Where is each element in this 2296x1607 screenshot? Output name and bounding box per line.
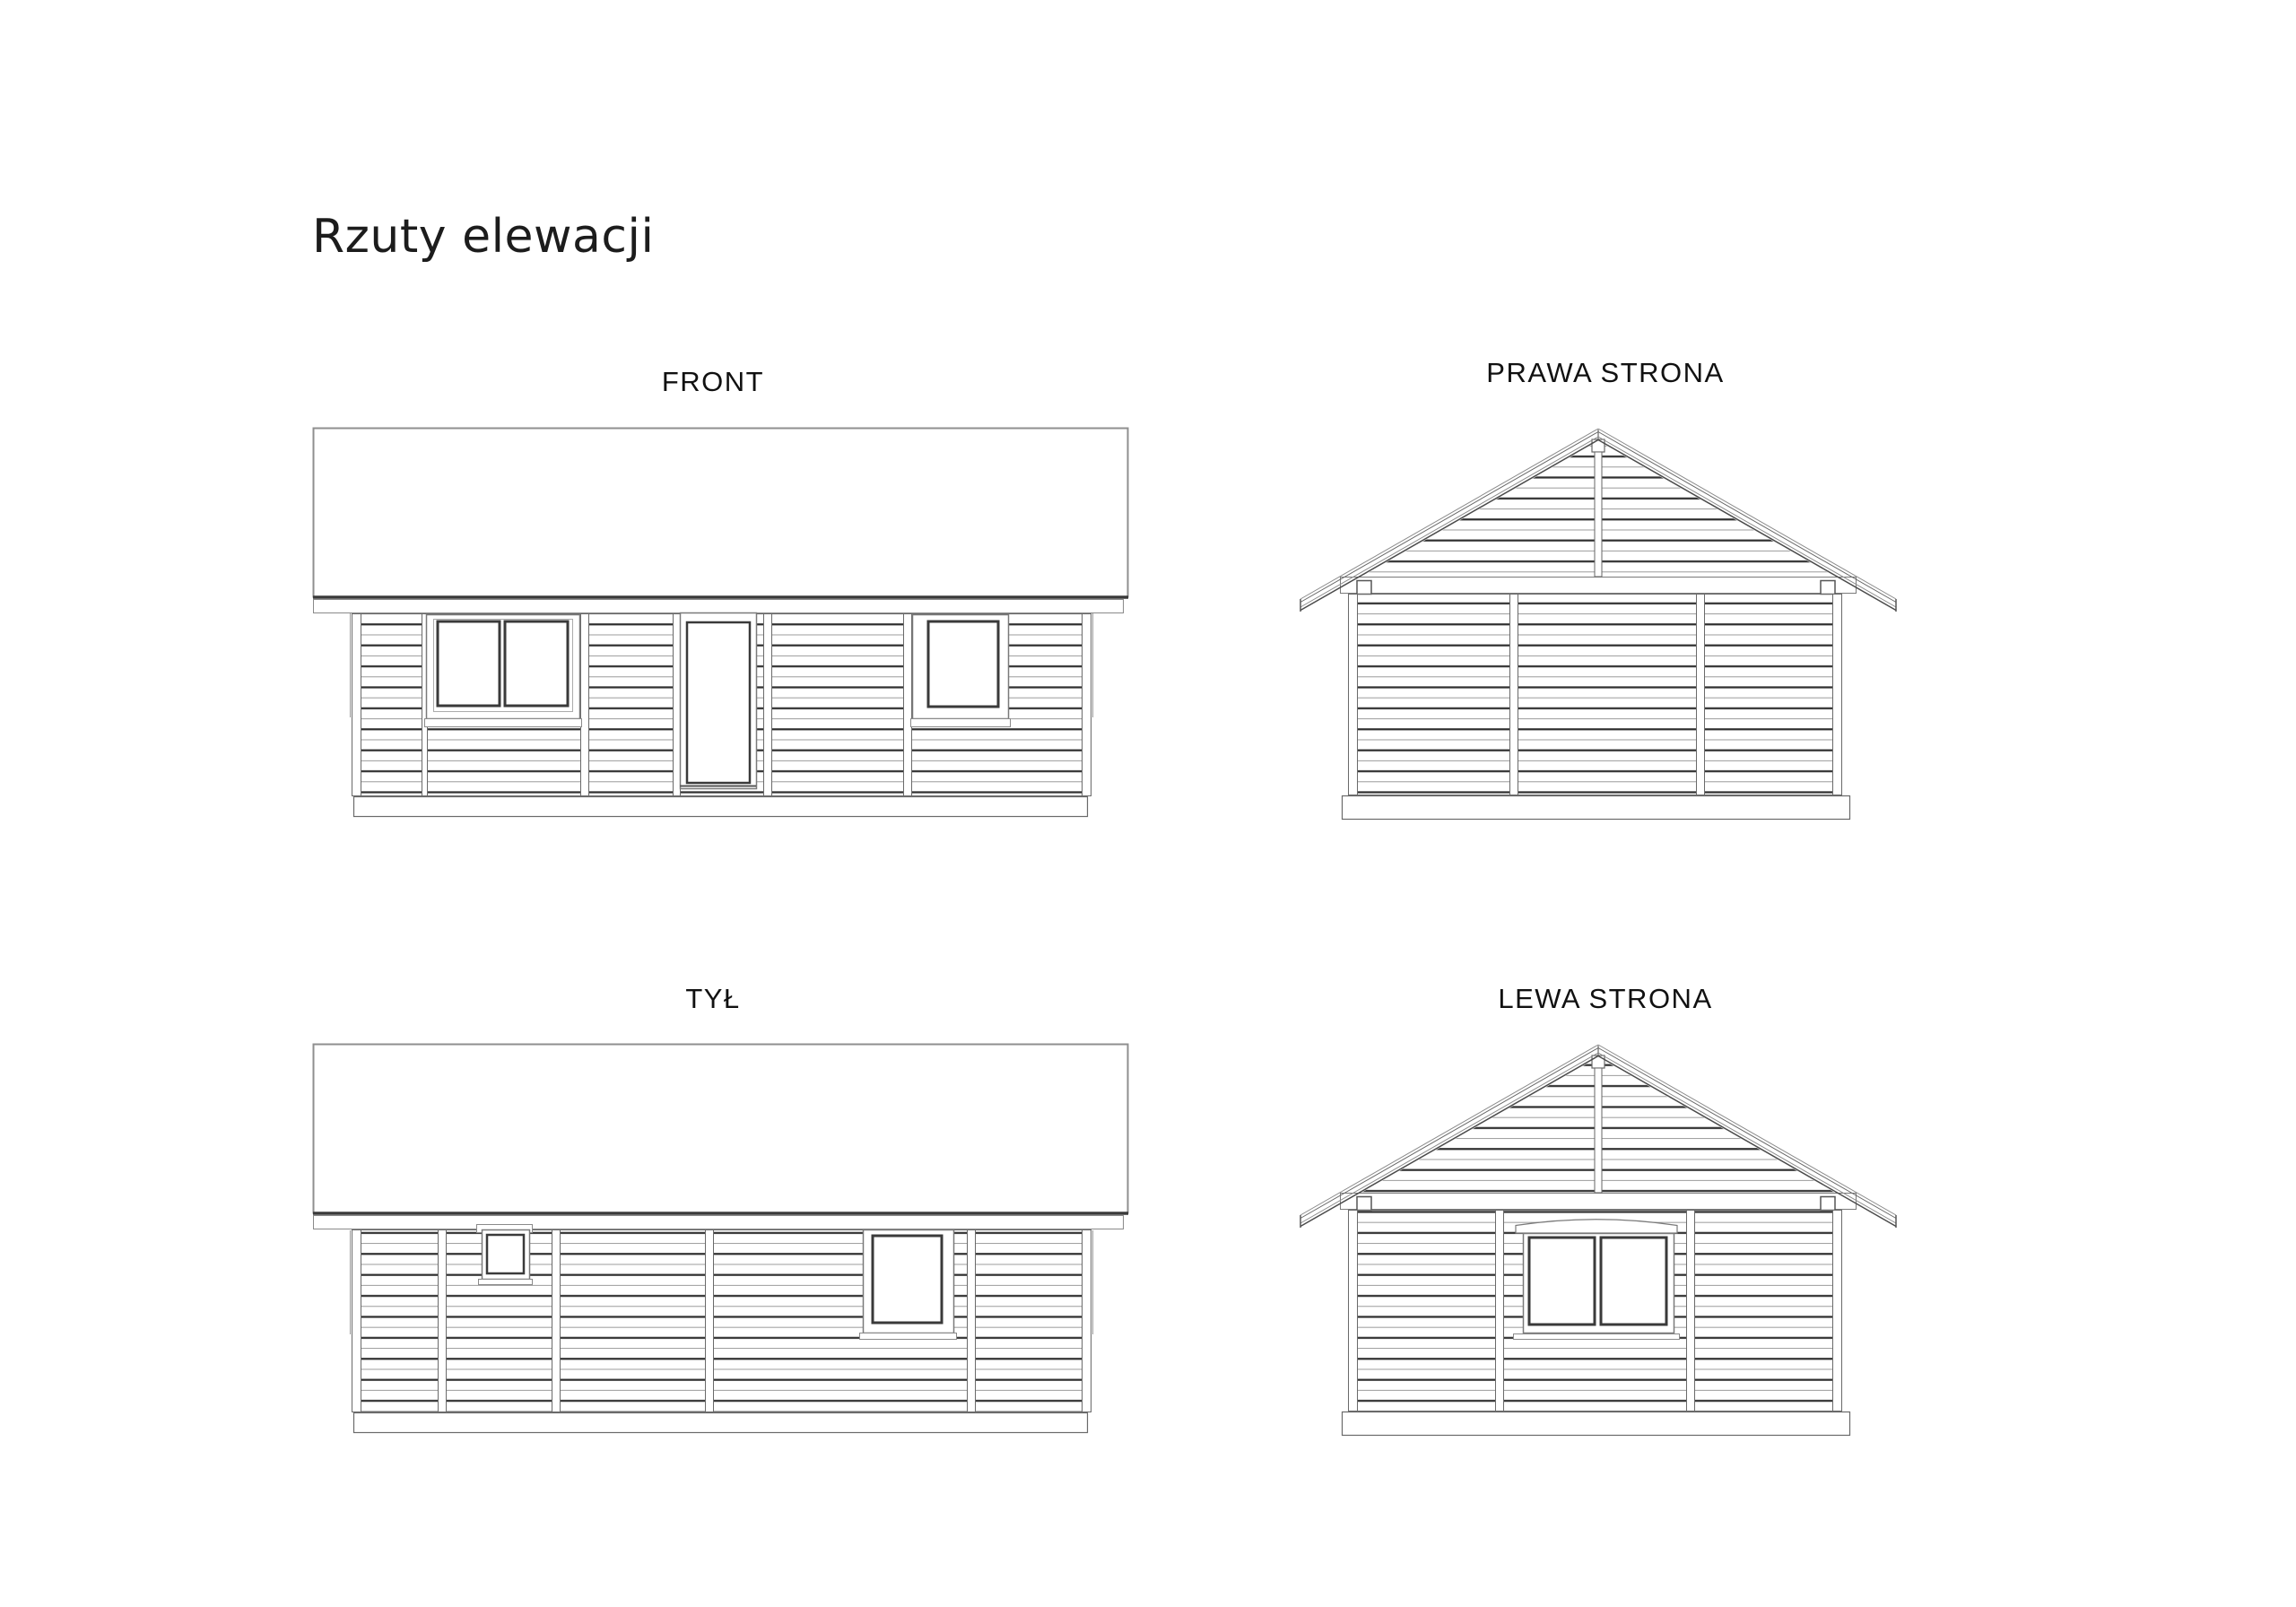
left-elevation-drawing xyxy=(1300,1045,1896,1436)
back-roof xyxy=(314,1045,1128,1213)
front-roof xyxy=(314,429,1128,597)
elevations-canvas xyxy=(0,0,2296,1607)
front-elevation-drawing xyxy=(313,429,1128,817)
front-door xyxy=(680,613,757,789)
back-window xyxy=(860,1230,957,1340)
front-double-window xyxy=(425,615,582,727)
back-corner-board-right xyxy=(1083,1230,1091,1412)
left-corner-board-right xyxy=(1833,1211,1842,1412)
front-corner-board-left xyxy=(352,614,361,796)
right-corner-board-left xyxy=(1349,595,1358,795)
front-base xyxy=(354,797,1088,817)
front-fascia xyxy=(314,600,1124,613)
left-base xyxy=(1343,1412,1850,1436)
left-eave-band xyxy=(1341,1194,1857,1210)
right-wall xyxy=(1349,595,1842,795)
right-eave-band xyxy=(1341,578,1857,594)
back-wall xyxy=(352,1230,1091,1412)
left-double-window xyxy=(1514,1220,1680,1340)
back-elevation-drawing xyxy=(313,1045,1128,1433)
back-fascia xyxy=(314,1216,1124,1229)
elevation-sheet: Rzuty elewacji FRONT PRAWA STRONA TYŁ LE… xyxy=(0,0,2296,1607)
back-small-window xyxy=(477,1225,533,1285)
front-corner-board-right xyxy=(1083,614,1091,796)
back-base xyxy=(354,1413,1088,1433)
left-corner-board-left xyxy=(1349,1211,1358,1412)
right-corner-board-right xyxy=(1833,595,1842,795)
right-elevation-drawing xyxy=(1300,429,1896,820)
right-base xyxy=(1343,796,1850,820)
front-single-window xyxy=(911,615,1011,727)
back-corner-board-left xyxy=(352,1230,361,1412)
